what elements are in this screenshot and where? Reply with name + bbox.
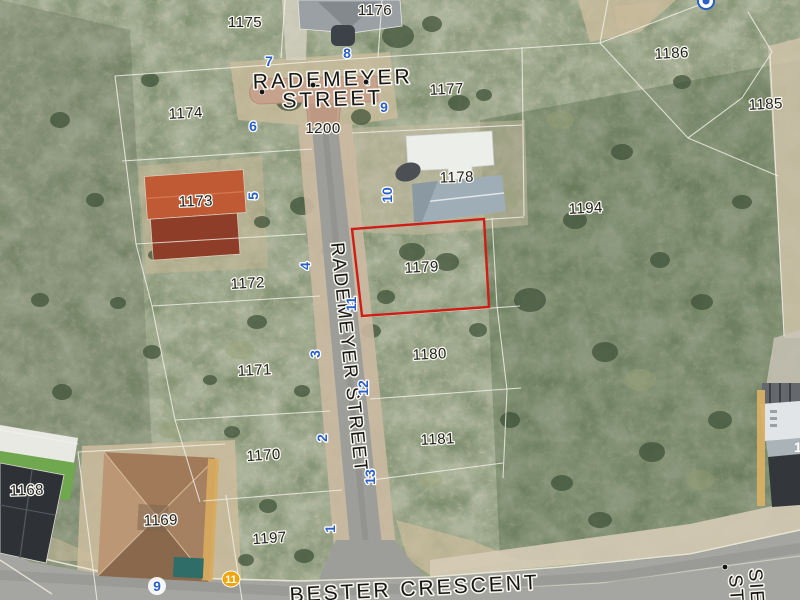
bush-light — [624, 369, 656, 391]
parcel-label-1179: 1179 — [404, 258, 439, 277]
parcel-label-1177: 1177 — [429, 80, 464, 99]
bush — [110, 297, 126, 309]
parcel-label-1172: 1172 — [230, 274, 265, 293]
street-label-side-line1: SIE — [744, 568, 768, 600]
bush — [673, 75, 691, 89]
address-marker-9: 9 — [380, 99, 388, 115]
address-marker-11: 11 — [343, 296, 359, 311]
street-label-rademeyer-line2: STREET — [282, 86, 384, 113]
bush — [639, 442, 665, 462]
bush — [259, 499, 277, 513]
survey-beacon-dot — [310, 82, 316, 88]
partial-parcel-label: 1 — [794, 439, 800, 455]
parcel-label-1185: 1185 — [748, 95, 783, 114]
parcel-label-1197: 1197 — [252, 529, 287, 548]
bush — [247, 315, 267, 329]
address-marker-yellow-label: 11 — [225, 574, 237, 586]
parcel-label-1168: 1168 — [9, 481, 44, 499]
bush — [254, 216, 270, 228]
address-marker-10: 10 — [379, 187, 395, 203]
address-marker-8: 8 — [343, 45, 351, 61]
address-marker-6: 6 — [249, 118, 257, 134]
parcel-label-1170: 1170 — [246, 446, 281, 465]
address-marker-12: 12 — [355, 380, 371, 396]
bush — [351, 109, 371, 125]
building-1173 — [144, 170, 249, 261]
bush — [592, 342, 618, 362]
bush — [469, 323, 487, 337]
bush — [588, 512, 612, 528]
parcel-label-1169: 1169 — [143, 511, 178, 529]
address-marker-5: 5 — [245, 192, 261, 200]
bush — [650, 252, 670, 268]
bush — [377, 290, 395, 304]
parcel-label-1180: 1180 — [412, 345, 447, 364]
bush — [203, 375, 217, 385]
survey-beacon-dot — [722, 564, 728, 570]
parcel-label-1175: 1175 — [228, 14, 262, 31]
parcel-label-1174: 1174 — [168, 104, 203, 123]
map-canvas[interactable]: 1 RADEMEYER STREET — [0, 0, 800, 600]
street-label-side-line2: ST — [724, 574, 747, 600]
bush-light — [686, 470, 714, 490]
bush — [294, 385, 310, 397]
address-marker-13: 13 — [362, 469, 378, 485]
address-marker-2: 2 — [314, 434, 330, 442]
bush — [514, 288, 546, 312]
bush — [143, 345, 161, 359]
pool — [173, 557, 204, 579]
address-marker-4: 4 — [297, 262, 313, 270]
bush — [691, 294, 713, 310]
bush — [294, 549, 314, 563]
bush — [224, 426, 240, 438]
parcel-label-1186: 1186 — [654, 44, 689, 63]
parcel-label-1181: 1181 — [420, 430, 455, 449]
bush — [50, 112, 70, 128]
bush-light — [226, 341, 254, 359]
parcel-label-1176: 1176 — [358, 2, 392, 19]
bush-light — [418, 472, 442, 488]
bush — [551, 475, 573, 491]
bush — [86, 193, 104, 207]
survey-beacon-dot — [259, 89, 265, 95]
bush — [141, 73, 159, 87]
bush — [708, 411, 732, 429]
parcel-label-1171: 1171 — [237, 361, 272, 380]
survey-beacon-dot — [363, 79, 369, 85]
address-marker-7: 7 — [265, 53, 273, 69]
parcel-label-1194: 1194 — [568, 199, 603, 218]
address-marker-partial-top — [698, 0, 714, 9]
bush — [238, 554, 254, 566]
bush — [52, 384, 72, 400]
bush — [422, 16, 442, 32]
bush — [732, 195, 752, 209]
parcel-label-1178: 1178 — [439, 168, 474, 186]
bush-light — [546, 111, 574, 129]
bush — [611, 144, 633, 160]
address-marker-3: 3 — [307, 350, 323, 358]
address-marker-yellow: 11 — [222, 571, 240, 587]
parcel-label-1173: 1173 — [178, 192, 213, 210]
address-marker-1: 1 — [322, 525, 338, 533]
bush — [31, 293, 49, 307]
road-number-label: 1200 — [305, 120, 340, 137]
bush — [476, 89, 492, 101]
bush — [500, 412, 520, 428]
address-marker-9: 9 — [153, 578, 161, 594]
